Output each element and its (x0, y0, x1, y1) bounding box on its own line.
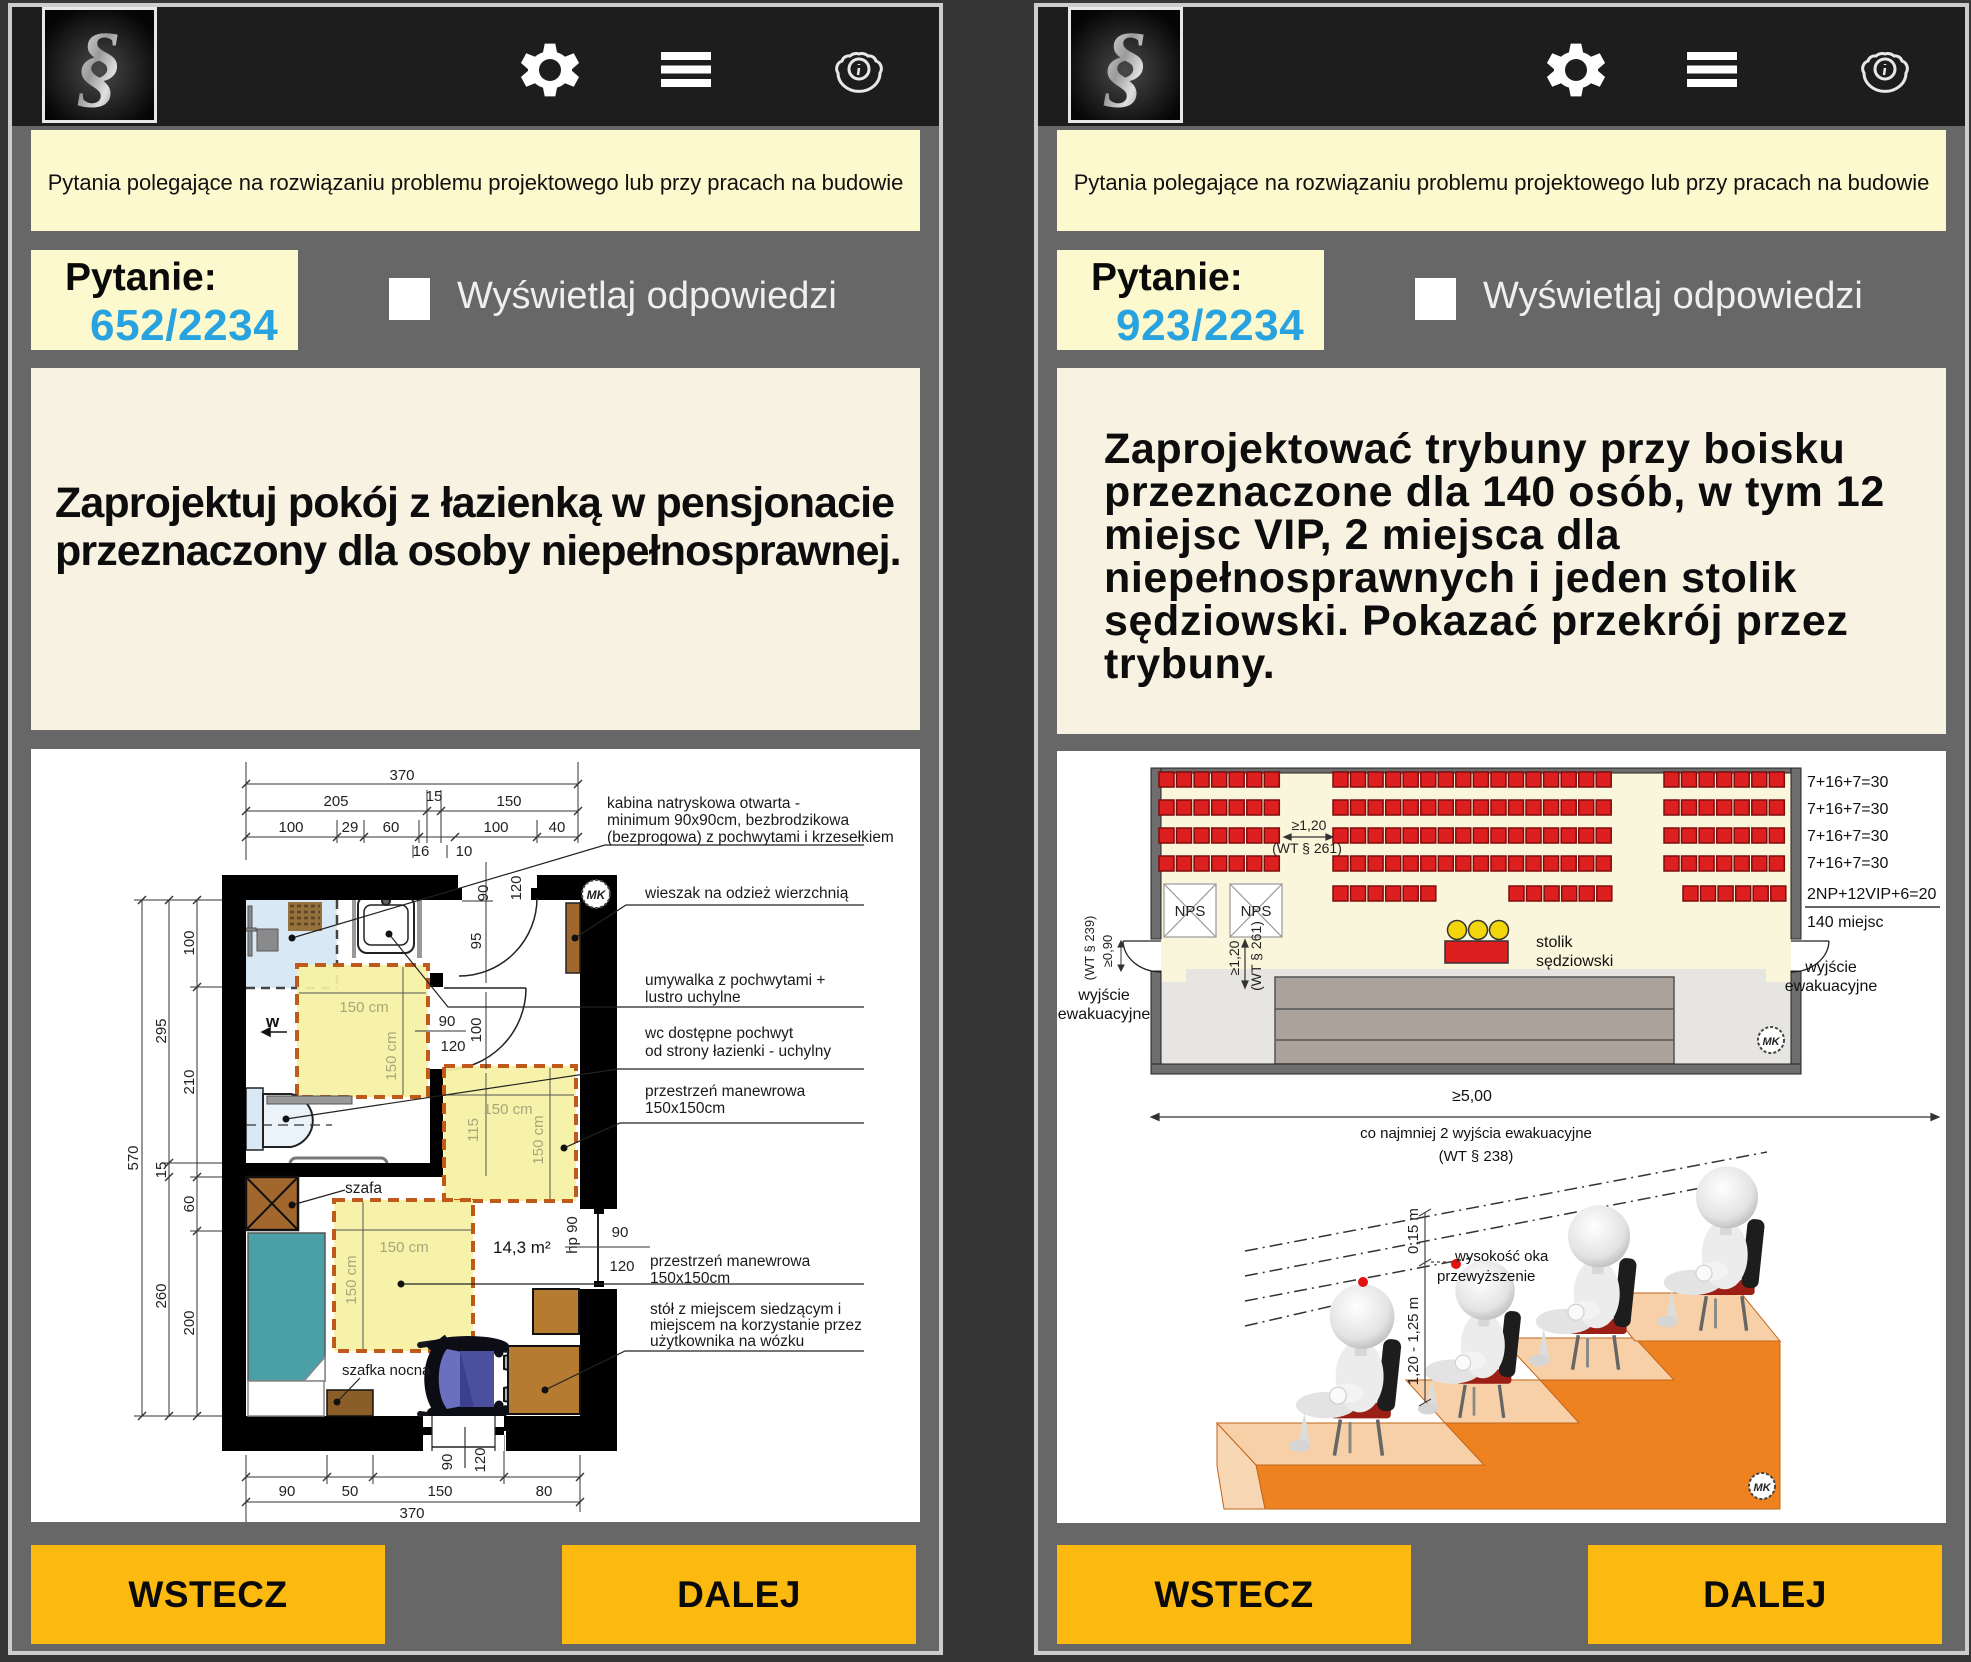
svg-text:szafa: szafa (345, 1180, 382, 1197)
svg-text:100: 100 (181, 930, 198, 955)
svg-text:(bezprogowa) z pochwytami i kr: (bezprogowa) z pochwytami i krzesełkiem (607, 829, 894, 846)
svg-text:MK: MK (1753, 1482, 1771, 1494)
svg-text:minimum 90x90cm, bezbrodzikowa: minimum 90x90cm, bezbrodzikowa (607, 812, 849, 829)
svg-text:570: 570 (125, 1145, 142, 1170)
svg-text:90: 90 (439, 1013, 456, 1030)
svg-text:7+16+7=30: 7+16+7=30 (1807, 828, 1889, 845)
svg-text:90: 90 (279, 1483, 296, 1500)
svg-text:120: 120 (609, 1258, 634, 1275)
svg-text:150 cm: 150 cm (339, 999, 388, 1016)
svg-text:przewyższenie: przewyższenie (1437, 1268, 1535, 1285)
svg-text:co najmniej 2 wyjścia ewakuacy: co najmniej 2 wyjścia ewakuacyjne (1360, 1125, 1592, 1142)
svg-text:50: 50 (342, 1483, 359, 1500)
svg-text:stolik: stolik (1536, 934, 1573, 951)
svg-text:210: 210 (181, 1069, 198, 1094)
svg-text:7+16+7=30: 7+16+7=30 (1807, 801, 1889, 818)
svg-text:370: 370 (389, 767, 414, 784)
svg-text:115: 115 (465, 1118, 482, 1142)
svg-text:60: 60 (181, 1196, 198, 1213)
svg-text:MK: MK (587, 888, 607, 902)
svg-text:100: 100 (278, 819, 303, 836)
svg-text:150: 150 (427, 1483, 452, 1500)
svg-text:95: 95 (468, 933, 485, 950)
svg-text:przestrzeń manewrowa: przestrzeń manewrowa (650, 1253, 811, 1270)
svg-text:kabina natryskowa otwarta -: kabina natryskowa otwarta - (607, 795, 800, 812)
svg-text:205: 205 (323, 793, 348, 810)
svg-text:wc dostępne pochwyt: wc dostępne pochwyt (644, 1025, 794, 1042)
svg-text:150 cm: 150 cm (383, 1031, 400, 1080)
svg-text:150 cm: 150 cm (530, 1115, 547, 1164)
svg-text:150x150cm: 150x150cm (645, 1100, 725, 1117)
svg-text:7+16+7=30: 7+16+7=30 (1807, 855, 1889, 872)
svg-text:90: 90 (475, 885, 492, 902)
svg-text:100: 100 (468, 1017, 485, 1042)
svg-text:ewakuacyjne: ewakuacyjne (1058, 1006, 1151, 1023)
svg-text:(WT § 261): (WT § 261) (1272, 840, 1342, 856)
svg-text:90: 90 (439, 1454, 456, 1471)
svg-text:80: 80 (536, 1483, 553, 1500)
svg-text:120: 120 (508, 875, 525, 900)
svg-text:ewakuacyjne: ewakuacyjne (1785, 978, 1878, 995)
svg-text:120: 120 (440, 1038, 465, 1055)
svg-text:użytkownika na wózku: użytkownika na wózku (650, 1333, 804, 1350)
svg-text:60: 60 (383, 819, 400, 836)
svg-text:90: 90 (612, 1224, 629, 1241)
svg-text:295: 295 (153, 1018, 170, 1043)
svg-text:przestrzeń manewrowa: przestrzeń manewrowa (645, 1083, 806, 1100)
svg-text:szafka nocna: szafka nocna (342, 1362, 431, 1379)
svg-text:150 cm: 150 cm (483, 1101, 532, 1118)
svg-text:≥1,20: ≥1,20 (1292, 817, 1327, 833)
svg-text:sędziowski: sędziowski (1536, 953, 1613, 970)
svg-text:lustro uchylne: lustro uchylne (645, 989, 741, 1006)
svg-text:260: 260 (153, 1283, 170, 1308)
svg-text:29: 29 (342, 819, 359, 836)
svg-text:150 cm: 150 cm (379, 1239, 428, 1256)
svg-text:(WT § 239): (WT § 239) (1082, 916, 1097, 981)
svg-text:7+16+7=30: 7+16+7=30 (1807, 774, 1889, 791)
svg-text:16: 16 (413, 843, 430, 860)
svg-text:40: 40 (549, 819, 566, 836)
svg-text:stół z miejscem siedzącym i: stół z miejscem siedzącym i (650, 1301, 841, 1318)
svg-text:MK: MK (1762, 1036, 1780, 1048)
svg-text:200: 200 (181, 1310, 198, 1335)
svg-text:150 cm: 150 cm (343, 1255, 360, 1304)
svg-text:miejscem na korzystanie przez: miejscem na korzystanie przez (650, 1317, 862, 1334)
svg-text:NPS: NPS (1175, 903, 1206, 920)
svg-text:≥1,20: ≥1,20 (1226, 940, 1242, 975)
svg-text:wysokość oka: wysokość oka (1454, 1248, 1549, 1265)
svg-text:(WT § 261): (WT § 261) (1248, 921, 1264, 991)
svg-text:150: 150 (496, 793, 521, 810)
svg-text:wieszak na odzież wierzchnią: wieszak na odzież wierzchnią (644, 885, 849, 902)
svg-text:2NP+12VIP+6=20: 2NP+12VIP+6=20 (1807, 886, 1937, 903)
svg-text:370: 370 (399, 1505, 424, 1522)
svg-text:140 miejsc: 140 miejsc (1807, 914, 1883, 931)
svg-text:150x150cm: 150x150cm (650, 1270, 730, 1287)
svg-text:100: 100 (483, 819, 508, 836)
svg-text:wyjście: wyjście (1077, 987, 1130, 1004)
svg-text:umywalka z pochwytami +: umywalka z pochwytami + (645, 972, 825, 989)
svg-text:≥5,00: ≥5,00 (1452, 1088, 1492, 1105)
svg-text:14,3 m²: 14,3 m² (493, 1238, 551, 1257)
svg-text:10: 10 (456, 843, 473, 860)
svg-text:hp 90: hp 90 (564, 1216, 581, 1254)
svg-text:NPS: NPS (1241, 903, 1272, 920)
svg-text:1,20 - 1,25 m: 1,20 - 1,25 m (1405, 1297, 1422, 1385)
svg-text:w: w (265, 1012, 280, 1031)
svg-text:0,15 m: 0,15 m (1405, 1208, 1422, 1254)
svg-text:wyjście: wyjście (1804, 959, 1857, 976)
svg-text:(WT § 238): (WT § 238) (1439, 1148, 1514, 1165)
svg-text:15: 15 (426, 788, 443, 805)
svg-text:120: 120 (472, 1447, 489, 1472)
svg-text:≥0,90: ≥0,90 (1100, 935, 1115, 967)
svg-text:od strony łazienki - uchylny: od strony łazienki - uchylny (645, 1043, 831, 1060)
